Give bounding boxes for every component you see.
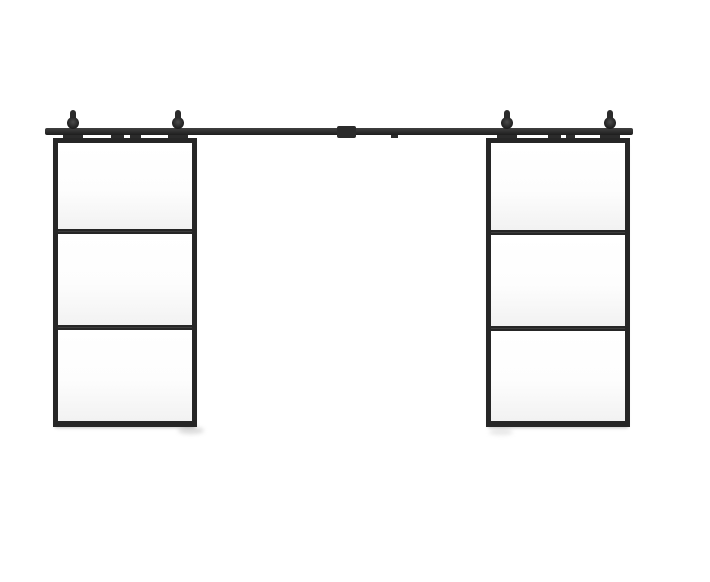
glass-panel [58, 143, 192, 229]
glass-panel [491, 331, 625, 421]
rail-mount-spacer [391, 135, 398, 138]
floor-shadow [178, 427, 204, 434]
left-sliding-door [53, 138, 197, 427]
roller-wheel [604, 117, 616, 129]
right-sliding-door [486, 138, 630, 427]
floor-shadow [489, 429, 513, 435]
roller-wheel [501, 117, 513, 129]
barn-door-product-image [0, 0, 710, 582]
roller-wheel [67, 117, 79, 129]
rail-connector-plate [337, 126, 356, 138]
glass-panel [491, 235, 625, 326]
glass-panel [58, 234, 192, 325]
glass-panel [491, 143, 625, 230]
roller-wheel [172, 117, 184, 129]
glass-panel [58, 330, 192, 421]
